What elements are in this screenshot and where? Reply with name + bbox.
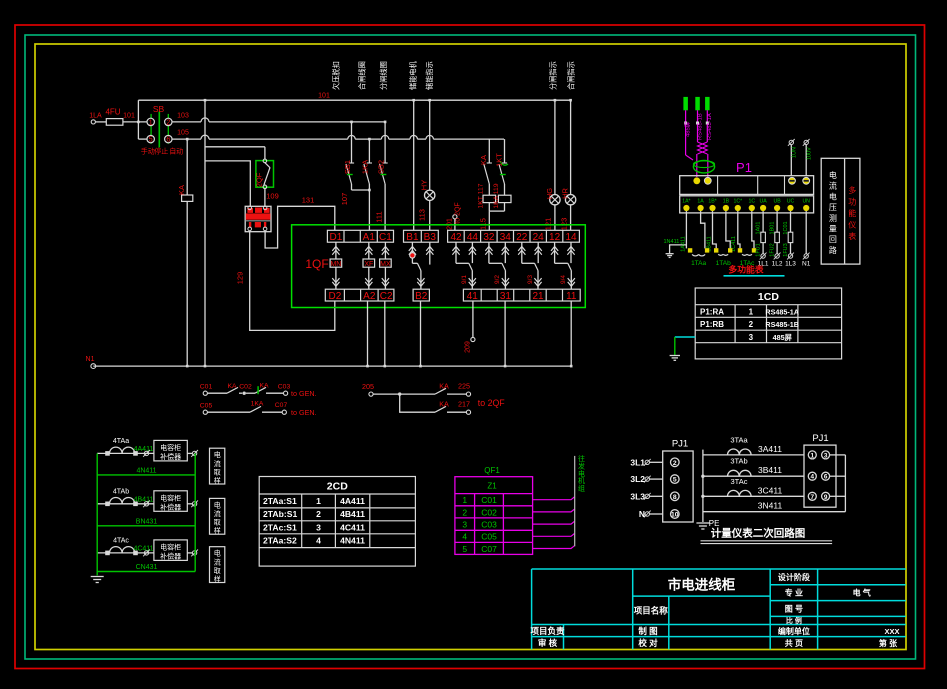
svg-text:取: 取 xyxy=(214,519,221,527)
svg-text:PJ1: PJ1 xyxy=(672,439,688,450)
svg-text:2: 2 xyxy=(166,120,170,127)
svg-text:C02: C02 xyxy=(239,384,252,391)
svg-text:12: 12 xyxy=(549,232,561,243)
svg-text:自动: 自动 xyxy=(169,147,183,156)
svg-text:1A411: 1A411 xyxy=(681,236,687,252)
svg-text:4FU: 4FU xyxy=(105,108,120,117)
svg-text:MN: MN xyxy=(330,261,341,268)
svg-text:6: 6 xyxy=(166,137,170,144)
svg-text:9/3: 9/3 xyxy=(527,275,534,284)
svg-text:C07: C07 xyxy=(275,402,288,409)
svg-text:能: 能 xyxy=(848,208,856,218)
svg-text:4: 4 xyxy=(462,532,467,542)
svg-text:3: 3 xyxy=(824,452,828,459)
svg-text:1: 1 xyxy=(149,120,153,127)
svg-text:2TAc:S1: 2TAc:S1 xyxy=(263,522,297,532)
svg-text:1A01: 1A01 xyxy=(756,222,762,235)
svg-text:取: 取 xyxy=(214,468,221,476)
svg-text:8: 8 xyxy=(673,494,677,501)
svg-text:2: 2 xyxy=(462,507,467,517)
svg-text:111: 111 xyxy=(375,211,384,222)
svg-text:2QF: 2QF xyxy=(255,172,264,187)
svg-text:审 核: 审 核 xyxy=(538,638,558,648)
svg-text:113: 113 xyxy=(418,209,427,221)
svg-text:样: 样 xyxy=(214,476,221,485)
svg-text:1N411: 1N411 xyxy=(664,239,680,245)
svg-text:1QF: 1QF xyxy=(305,257,328,271)
svg-text:KA: KA xyxy=(177,185,186,195)
svg-text:3TAc: 3TAc xyxy=(731,477,748,486)
svg-text:XF: XF xyxy=(364,261,373,268)
svg-text:109: 109 xyxy=(266,192,279,201)
svg-text:C01: C01 xyxy=(481,495,497,505)
svg-text:3: 3 xyxy=(316,522,321,532)
svg-text:1C01: 1C01 xyxy=(783,221,789,234)
svg-text:3B411: 3B411 xyxy=(758,465,782,475)
svg-text:Z1: Z1 xyxy=(487,482,497,491)
svg-text:1B: 1B xyxy=(723,199,730,205)
svg-text:3: 3 xyxy=(462,520,467,530)
svg-text:B2: B2 xyxy=(415,291,428,302)
svg-text:4TAb: 4TAb xyxy=(113,488,129,495)
svg-text:A1: A1 xyxy=(363,232,376,243)
svg-text:路: 路 xyxy=(829,245,837,255)
svg-text:C1: C1 xyxy=(379,232,392,243)
svg-text:3L2: 3L2 xyxy=(630,474,645,484)
svg-text:4C411: 4C411 xyxy=(133,545,153,552)
svg-text:1TAa: 1TAa xyxy=(691,260,706,267)
svg-text:2TAa:S2: 2TAa:S2 xyxy=(263,536,297,546)
svg-text:机: 机 xyxy=(578,476,585,485)
svg-text:2: 2 xyxy=(316,509,321,519)
svg-text:4: 4 xyxy=(811,474,815,481)
svg-text:共 页: 共 页 xyxy=(785,638,803,648)
svg-text:4N411: 4N411 xyxy=(340,536,365,546)
svg-text:4C411: 4C411 xyxy=(340,522,365,532)
svg-text:2TAb:S1: 2TAb:S1 xyxy=(263,509,297,519)
svg-text:C02: C02 xyxy=(481,507,497,517)
svg-text:105: 105 xyxy=(177,130,189,137)
svg-text:1L3: 1L3 xyxy=(785,261,796,268)
svg-text:制 图: 制 图 xyxy=(638,626,657,636)
svg-text:C05: C05 xyxy=(481,532,497,542)
svg-text:市电进线柜: 市电进线柜 xyxy=(668,577,736,593)
svg-text:2: 2 xyxy=(749,320,754,329)
svg-text:1B01: 1B01 xyxy=(770,222,776,235)
svg-text:3: 3 xyxy=(749,333,754,342)
svg-text:7: 7 xyxy=(811,494,815,501)
svg-text:储能指示: 储能指示 xyxy=(425,61,434,90)
svg-text:1LA: 1LA xyxy=(89,113,102,120)
svg-text:CN431: CN431 xyxy=(136,564,158,571)
svg-text:1: 1 xyxy=(749,307,754,316)
svg-text:to GEN.: to GEN. xyxy=(291,389,317,398)
svg-text:组: 组 xyxy=(578,484,585,493)
svg-text:B1: B1 xyxy=(406,232,419,243)
svg-text:HY: HY xyxy=(420,180,429,190)
svg-text:44: 44 xyxy=(467,232,479,243)
svg-text:1FU2: 1FU2 xyxy=(770,243,776,256)
svg-text:电: 电 xyxy=(829,191,837,201)
svg-text:电: 电 xyxy=(578,469,585,478)
svg-text:停止: 停止 xyxy=(154,147,168,156)
svg-text:11: 11 xyxy=(566,291,577,302)
svg-text:107: 107 xyxy=(340,193,349,206)
svg-text:电: 电 xyxy=(214,450,221,459)
svg-text:32: 32 xyxy=(483,232,495,243)
svg-text:41: 41 xyxy=(467,291,479,302)
svg-text:表: 表 xyxy=(848,231,856,241)
svg-text:1FU3: 1FU3 xyxy=(783,243,789,256)
svg-text:SB: SB xyxy=(153,104,165,114)
svg-text:C07: C07 xyxy=(481,544,497,554)
svg-text:to 2QF: to 2QF xyxy=(478,398,506,408)
svg-text:1UN: 1UN xyxy=(792,147,798,158)
svg-text:3L3: 3L3 xyxy=(630,491,645,501)
svg-text:HR: HR xyxy=(561,188,570,199)
svg-text:样: 样 xyxy=(214,575,221,584)
svg-text:BN431: BN431 xyxy=(136,518,158,525)
svg-text:MX: MX xyxy=(380,261,391,268)
svg-text:RS485-1B: RS485-1B xyxy=(765,320,799,329)
svg-text:量: 量 xyxy=(829,225,837,234)
svg-text:103: 103 xyxy=(177,113,189,120)
svg-text:485屏: 485屏 xyxy=(773,333,792,342)
svg-text:to GEN.: to GEN. xyxy=(291,408,317,417)
svg-text:UC: UC xyxy=(787,199,795,205)
svg-text:图 号: 图 号 xyxy=(785,605,803,614)
svg-text:RS485-1B: RS485-1B xyxy=(698,113,704,140)
svg-text:1KA: 1KA xyxy=(251,401,264,408)
svg-text:编制单位: 编制单位 xyxy=(778,626,810,636)
svg-text:3TAa: 3TAa xyxy=(730,435,748,444)
svg-text:3A411: 3A411 xyxy=(758,444,782,454)
svg-text:115: 115 xyxy=(479,218,488,230)
svg-text:3L1: 3L1 xyxy=(630,457,645,467)
svg-text:3TAb: 3TAb xyxy=(730,457,747,466)
svg-text:485屏: 485屏 xyxy=(685,121,692,137)
svg-text:电: 电 xyxy=(829,170,837,180)
svg-text:5: 5 xyxy=(149,137,153,144)
svg-text:to 2QF: to 2QF xyxy=(455,202,462,223)
svg-text:4A411: 4A411 xyxy=(134,446,154,453)
svg-text:HG: HG xyxy=(545,188,554,199)
svg-text:设计阶段: 设计阶段 xyxy=(778,572,810,582)
svg-text:101: 101 xyxy=(318,93,330,100)
svg-text:225: 225 xyxy=(458,382,470,391)
svg-text:121: 121 xyxy=(544,218,553,231)
svg-text:多功能表: 多功能表 xyxy=(728,264,763,275)
svg-text:往: 往 xyxy=(578,454,585,463)
svg-text:分闸指示: 分闸指示 xyxy=(549,61,558,90)
svg-text:校 对: 校 对 xyxy=(638,638,658,648)
svg-text:多: 多 xyxy=(848,185,856,195)
svg-text:KA: KA xyxy=(479,155,488,165)
svg-text:KA: KA xyxy=(439,382,449,391)
svg-text:P1:RA: P1:RA xyxy=(700,307,724,316)
svg-text:KA: KA xyxy=(227,383,237,390)
svg-text:1KT 117: 1KT 117 xyxy=(478,183,485,208)
svg-text:UA: UA xyxy=(759,199,767,205)
svg-text:电容柜: 电容柜 xyxy=(160,493,181,502)
svg-text:手动: 手动 xyxy=(141,147,155,156)
svg-text:样: 样 xyxy=(214,526,221,535)
svg-text:专 业: 专 业 xyxy=(785,588,803,598)
svg-text:4N411: 4N411 xyxy=(136,467,156,474)
svg-text:PJ1: PJ1 xyxy=(812,433,828,444)
svg-text:项目名称: 项目名称 xyxy=(634,606,669,616)
svg-text:22: 22 xyxy=(516,232,528,243)
svg-text:1L2: 1L2 xyxy=(772,261,783,268)
svg-text:10: 10 xyxy=(671,512,679,519)
svg-text:9/1: 9/1 xyxy=(461,275,468,284)
svg-text:42: 42 xyxy=(450,232,462,243)
svg-text:B3: B3 xyxy=(424,232,437,243)
svg-text:201: 201 xyxy=(447,218,454,230)
svg-text:取: 取 xyxy=(214,567,221,575)
svg-text:流: 流 xyxy=(214,557,221,566)
svg-text:2TAa:S1: 2TAa:S1 xyxy=(263,496,297,506)
svg-text:4B411: 4B411 xyxy=(134,496,154,503)
svg-text:14: 14 xyxy=(565,232,577,243)
svg-text:1CD: 1CD xyxy=(758,291,779,303)
svg-text:2: 2 xyxy=(673,460,677,467)
svg-text:101: 101 xyxy=(123,113,135,120)
svg-text:4TAc: 4TAc xyxy=(113,537,129,544)
svg-text:N1: N1 xyxy=(86,356,95,363)
svg-text:1KA 119: 1KA 119 xyxy=(493,183,500,208)
svg-text:QF1: QF1 xyxy=(484,466,500,475)
svg-text:C03: C03 xyxy=(481,520,497,530)
svg-text:31: 31 xyxy=(500,291,512,302)
svg-text:1KA: 1KA xyxy=(361,160,370,174)
svg-text:功: 功 xyxy=(848,197,856,207)
svg-text:P1:RB: P1:RB xyxy=(700,320,724,329)
svg-text:1FU1: 1FU1 xyxy=(756,243,762,256)
svg-text:4A411: 4A411 xyxy=(340,496,365,506)
svg-text:补偿器: 补偿器 xyxy=(160,452,181,461)
svg-text:仪: 仪 xyxy=(848,221,856,230)
svg-text:4TAa: 4TAa xyxy=(113,438,129,445)
svg-text:123: 123 xyxy=(559,218,568,231)
svg-text:第 张: 第 张 xyxy=(879,638,898,648)
svg-text:1: 1 xyxy=(462,495,467,505)
svg-text:131: 131 xyxy=(302,196,315,205)
svg-text:217: 217 xyxy=(458,400,470,409)
svg-text:3N411: 3N411 xyxy=(758,501,783,511)
svg-text:9: 9 xyxy=(824,494,828,501)
svg-text:N1: N1 xyxy=(802,261,811,268)
svg-text:欠压脱扣: 欠压脱扣 xyxy=(332,61,341,90)
svg-text:分闸线圈: 分闸线圈 xyxy=(379,61,388,90)
svg-text:流: 流 xyxy=(214,509,221,518)
svg-text:电: 电 xyxy=(214,500,221,509)
svg-text:34: 34 xyxy=(500,232,512,243)
svg-text:计量仪表二次回路图: 计量仪表二次回路图 xyxy=(711,527,806,540)
svg-text:P1: P1 xyxy=(736,160,752,175)
svg-text:测: 测 xyxy=(829,214,837,223)
svg-text:1KT: 1KT xyxy=(495,153,504,167)
svg-text:SB1: SB1 xyxy=(343,160,352,174)
svg-text:KA: KA xyxy=(439,400,449,409)
svg-text:XXX: XXX xyxy=(884,627,899,636)
svg-text:电容柜: 电容柜 xyxy=(160,443,181,452)
svg-text:UN: UN xyxy=(802,199,810,205)
svg-text:电 气: 电 气 xyxy=(853,588,871,598)
svg-text:RS485-1A: RS485-1A xyxy=(765,307,799,316)
svg-text:9/4: 9/4 xyxy=(560,275,567,284)
svg-text:4B411: 4B411 xyxy=(340,509,365,519)
svg-text:1C*: 1C* xyxy=(733,199,742,205)
svg-text:1C: 1C xyxy=(748,199,755,205)
svg-text:A2: A2 xyxy=(363,291,376,302)
svg-text:流: 流 xyxy=(829,181,837,191)
svg-text:D2: D2 xyxy=(329,291,342,302)
svg-text:补偿器: 补偿器 xyxy=(160,551,181,560)
svg-text:1B*: 1B* xyxy=(708,199,716,205)
svg-text:N: N xyxy=(639,509,645,519)
svg-text:C01: C01 xyxy=(200,384,213,391)
svg-text:1: 1 xyxy=(811,452,815,459)
svg-text:电: 电 xyxy=(214,549,221,558)
svg-text:压: 压 xyxy=(829,203,837,212)
svg-text:UB: UB xyxy=(773,199,781,205)
svg-text:SB2: SB2 xyxy=(377,160,386,174)
svg-text:C05: C05 xyxy=(200,403,213,410)
svg-text:100V: 100V xyxy=(807,147,813,160)
svg-text:储能电机: 储能电机 xyxy=(409,60,418,90)
svg-text:合闸指示: 合闸指示 xyxy=(567,61,576,90)
svg-text:129: 129 xyxy=(236,272,245,285)
svg-text:发: 发 xyxy=(578,461,585,470)
svg-text:电容柜: 电容柜 xyxy=(160,542,181,551)
svg-text:209: 209 xyxy=(465,341,472,353)
svg-text:2CD: 2CD xyxy=(327,481,348,493)
svg-text:4: 4 xyxy=(316,536,321,546)
svg-text:流: 流 xyxy=(214,459,221,468)
svg-text:1A*: 1A* xyxy=(682,199,690,205)
svg-text:KA: KA xyxy=(259,383,269,390)
svg-text:补偿器: 补偿器 xyxy=(160,502,181,511)
svg-text:RS485-1A: RS485-1A xyxy=(707,113,713,140)
svg-text:5: 5 xyxy=(462,544,467,554)
svg-text:24: 24 xyxy=(533,232,545,243)
svg-text:1: 1 xyxy=(316,496,321,506)
svg-text:9/2: 9/2 xyxy=(494,275,501,284)
svg-text:项目负责: 项目负责 xyxy=(530,626,565,636)
svg-text:3C411: 3C411 xyxy=(758,485,783,495)
svg-text:6: 6 xyxy=(824,474,828,481)
svg-text:比 例: 比 例 xyxy=(786,616,802,625)
svg-text:5: 5 xyxy=(673,477,677,484)
svg-text:205: 205 xyxy=(362,382,374,391)
svg-text:1A: 1A xyxy=(697,199,704,205)
svg-text:回: 回 xyxy=(829,235,837,244)
svg-text:21: 21 xyxy=(532,291,544,302)
svg-text:C2: C2 xyxy=(380,291,393,302)
svg-text:D1: D1 xyxy=(330,232,343,243)
svg-text:合闸线圈: 合闸线圈 xyxy=(358,61,367,90)
svg-text:C03: C03 xyxy=(278,384,291,391)
